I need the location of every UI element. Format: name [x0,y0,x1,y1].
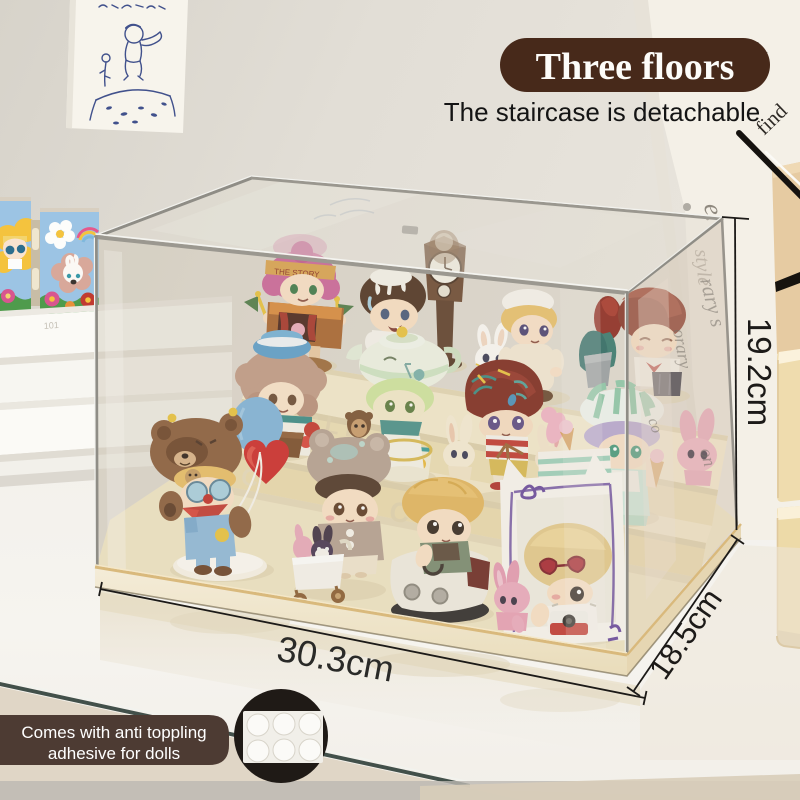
svg-text:101: 101 [43,320,59,331]
svg-text:Three floors: Three floors [536,46,735,88]
svg-text:adhesive for dolls: adhesive for dolls [48,744,180,763]
svg-text:Comes with anti toppling: Comes with anti toppling [21,723,206,742]
svg-text:19.2cm: 19.2cm [741,318,778,426]
svg-text:The staircase is detachable: The staircase is detachable [444,97,761,127]
